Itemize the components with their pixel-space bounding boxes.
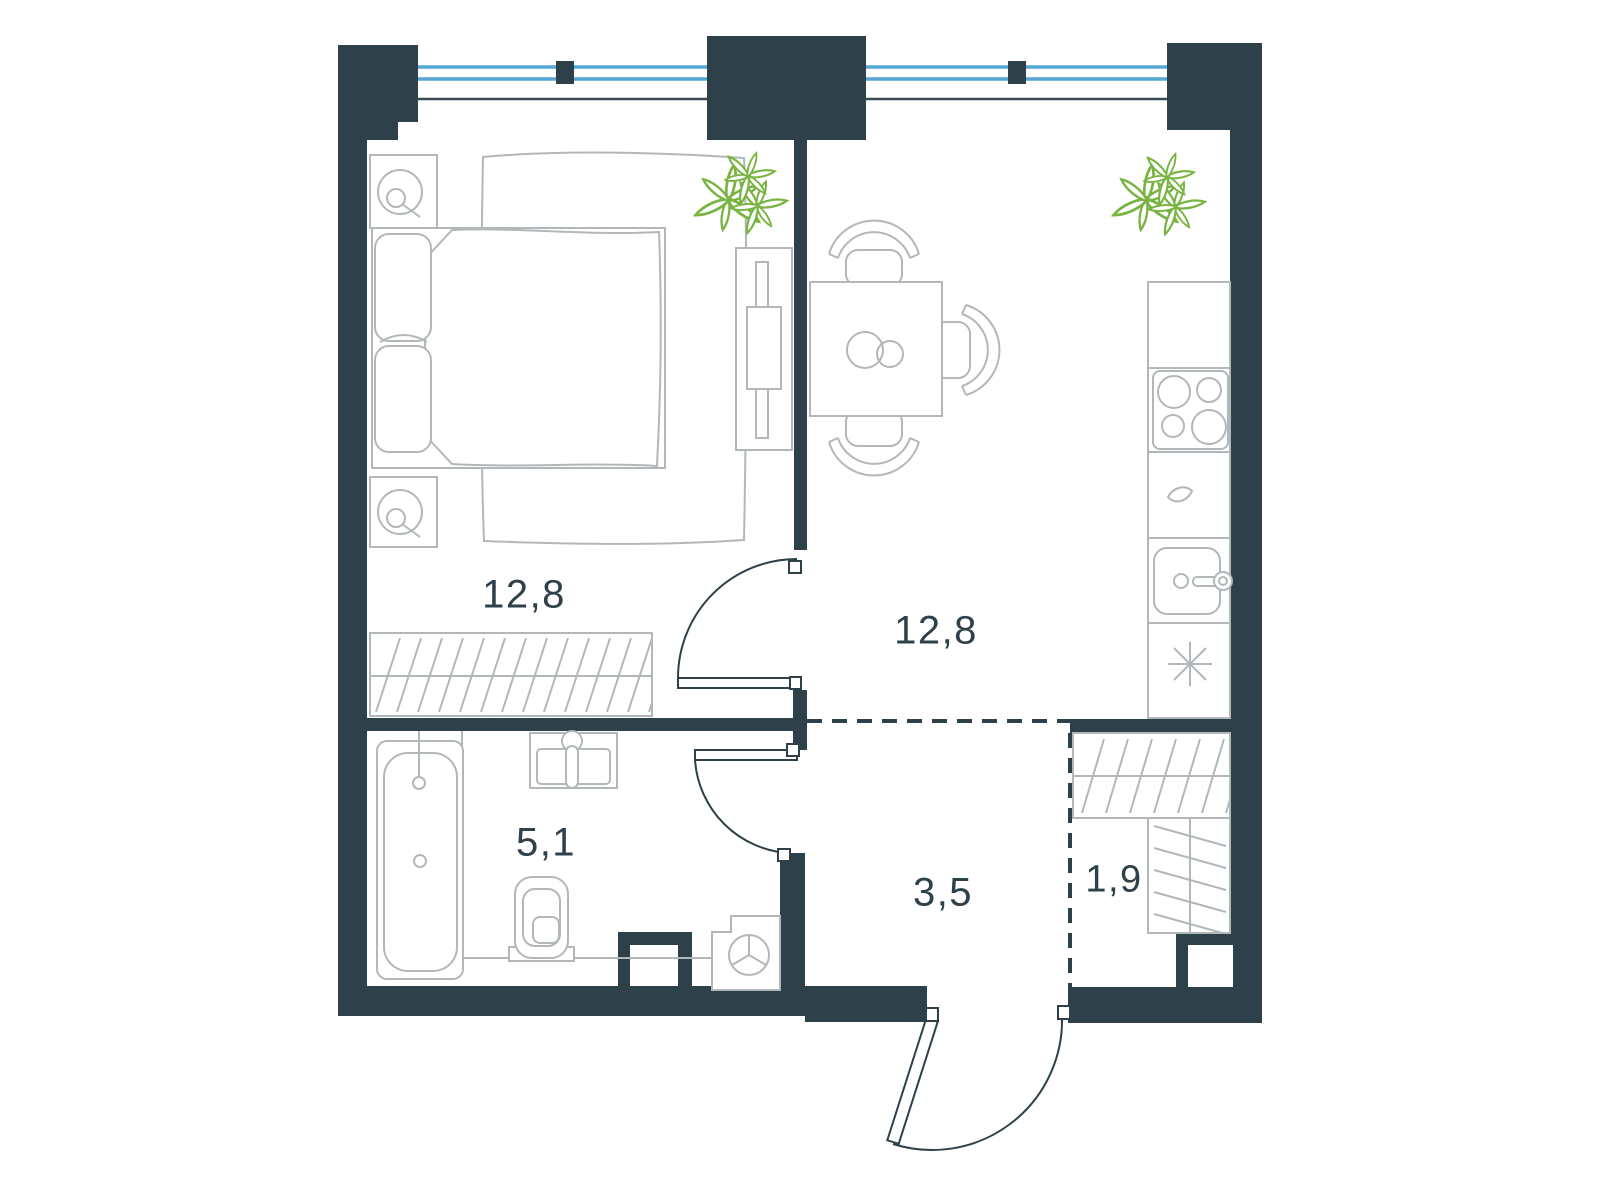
floor-plan-page: 12,8 12,8 5,1 3,5 1,9 xyxy=(0,0,1600,1200)
door-jamb xyxy=(778,849,790,861)
hanging-rail-icon xyxy=(1073,733,1248,818)
pillar-top-middle xyxy=(707,36,866,140)
window-mullion xyxy=(556,61,574,84)
entrance-door xyxy=(887,1006,1070,1150)
washing-machine-icon xyxy=(712,916,780,990)
room-label-kitchen: 12,8 xyxy=(894,609,978,654)
nightstand-with-lamp xyxy=(370,477,437,547)
room-label-bedroom: 12,8 xyxy=(482,573,566,618)
shelving-unit-icon xyxy=(1148,818,1230,934)
kitchen-furniture xyxy=(810,149,1232,718)
plant-icon xyxy=(1110,149,1213,242)
door-jamb xyxy=(926,1008,938,1021)
wall-bottom-right xyxy=(1068,987,1262,1023)
toilet-icon xyxy=(509,877,574,961)
wall-entrance-left-jamb xyxy=(805,986,927,1022)
wall-right xyxy=(1230,130,1262,1023)
hallway-boundary xyxy=(807,721,1070,987)
room-label-bathroom: 5,1 xyxy=(516,821,576,866)
pillow xyxy=(375,346,431,452)
washbasin-icon xyxy=(530,731,617,788)
room-label-wardrobe: 1,9 xyxy=(1085,859,1142,902)
door-jamb xyxy=(789,561,801,573)
door-swing-arc xyxy=(695,760,789,853)
duct-shaft-inner xyxy=(630,945,678,986)
window-mullion xyxy=(1008,61,1026,84)
bedroom-door xyxy=(678,559,801,689)
floor-plan-drawing xyxy=(0,0,1600,1200)
room-label-hallway: 3,5 xyxy=(913,871,973,916)
wardrobe-rail xyxy=(370,633,673,716)
door-jamb xyxy=(787,744,799,756)
doors xyxy=(678,559,1070,1150)
wardrobe-room-furniture xyxy=(1073,733,1248,934)
door-leaf xyxy=(695,750,797,760)
wall-bedroom-kitchen xyxy=(794,138,807,550)
bathtub-icon xyxy=(377,731,463,979)
nightstand-with-lamp xyxy=(370,155,437,228)
wall-kitchen-wardrobe xyxy=(1070,719,1233,733)
wall-post-middle xyxy=(793,690,807,750)
wardrobe-corner-niche xyxy=(1188,945,1233,987)
bathroom-furniture xyxy=(377,731,780,990)
door-jamb xyxy=(1058,1006,1070,1019)
refrigerator-asterisk-icon xyxy=(1168,642,1212,686)
wall-left xyxy=(338,140,367,1016)
dining-chair xyxy=(829,410,919,475)
pillar-top-left xyxy=(338,45,418,140)
duvet xyxy=(425,229,661,466)
bathroom-door xyxy=(695,744,799,861)
tv-console xyxy=(736,248,792,450)
tv-shelf xyxy=(747,307,781,389)
wall-bathroom-hallway xyxy=(780,853,805,986)
dining-chair xyxy=(934,305,999,395)
pillar-top-right xyxy=(1167,43,1262,130)
pillow xyxy=(375,234,431,341)
door-leaf xyxy=(887,1018,937,1144)
door-swing-arc xyxy=(678,559,797,678)
door-jamb xyxy=(790,677,801,689)
bedroom-furniture xyxy=(370,148,795,716)
dining-table xyxy=(810,282,942,416)
wall-bedroom-bathroom xyxy=(367,718,793,731)
dining-chair xyxy=(829,221,919,286)
door-leaf xyxy=(678,678,797,688)
